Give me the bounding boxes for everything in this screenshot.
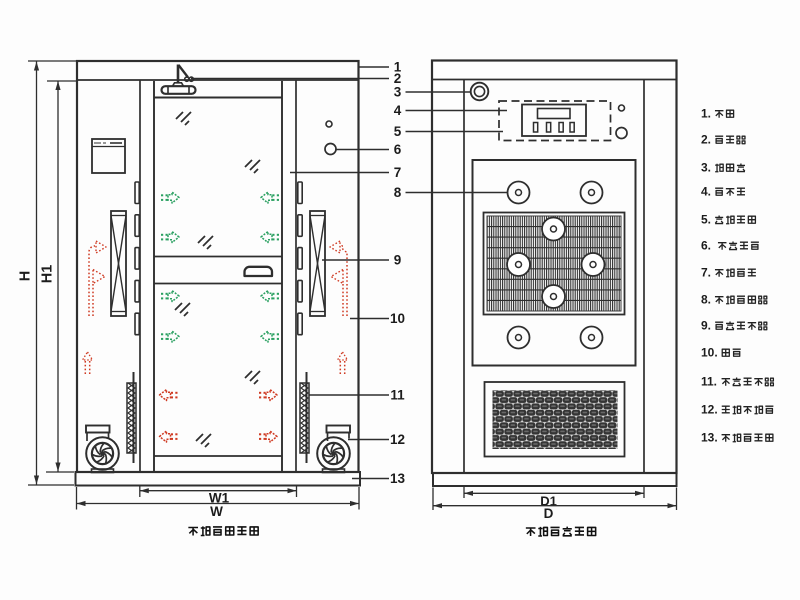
svg-text:8: 8 [394, 185, 402, 200]
svg-text:5.: 5. [701, 212, 711, 226]
svg-text:3: 3 [394, 85, 402, 100]
svg-text:7: 7 [394, 165, 402, 180]
svg-text:11: 11 [390, 388, 405, 403]
svg-text:4: 4 [394, 103, 402, 118]
svg-text:1.: 1. [701, 106, 711, 120]
svg-text:9: 9 [394, 253, 402, 268]
svg-text:W: W [210, 504, 223, 519]
svg-text:13: 13 [390, 471, 406, 486]
svg-text:5: 5 [394, 124, 402, 139]
svg-text:13.: 13. [701, 430, 718, 444]
svg-text:H1: H1 [40, 265, 56, 284]
svg-text:4.: 4. [701, 184, 711, 198]
svg-text:10.: 10. [701, 345, 718, 359]
svg-text:3.: 3. [701, 160, 711, 174]
svg-text:10: 10 [390, 311, 405, 326]
svg-text:7.: 7. [701, 265, 711, 279]
svg-text:12.: 12. [701, 402, 718, 416]
svg-text:12: 12 [390, 432, 405, 447]
svg-text:8.: 8. [701, 292, 711, 306]
svg-text:H: H [18, 271, 34, 281]
svg-text:2.: 2. [701, 132, 711, 146]
svg-text:6: 6 [394, 142, 402, 157]
svg-text:D: D [544, 506, 554, 521]
svg-text:9.: 9. [701, 318, 711, 332]
svg-text:6.: 6. [701, 238, 711, 252]
svg-text:11.: 11. [701, 374, 717, 388]
